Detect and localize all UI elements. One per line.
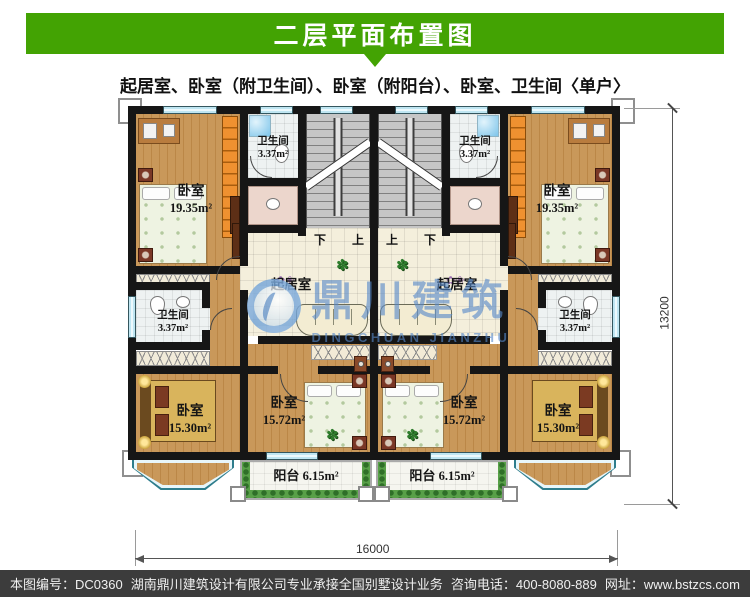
dimension-width: 16000	[356, 542, 389, 556]
room-area: 3.37m²	[538, 323, 612, 336]
room-area: 19.35m²	[522, 200, 592, 216]
lamp-icon	[597, 436, 610, 449]
nightstand	[138, 248, 153, 262]
window	[163, 106, 217, 114]
room-label-bedroom-bcr: 卧室 15.72m²	[424, 394, 504, 428]
room-name: 卧室	[424, 394, 504, 412]
room-label-bath-ml: 卫生间 3.37m²	[136, 310, 210, 335]
company-slogan: 湖南鼎川建筑设计有限公司专业承接全国别墅设计业务	[131, 574, 443, 593]
lamp-icon	[597, 375, 610, 388]
room-name: 卧室	[156, 182, 226, 200]
wall	[538, 290, 546, 308]
dimension-arrow	[135, 555, 144, 563]
shower-icon	[249, 115, 271, 137]
nightstand	[352, 436, 367, 450]
room-area: 15.72m²	[424, 412, 504, 428]
wall	[450, 178, 500, 186]
room-name: 卫生间	[136, 310, 210, 323]
wall	[136, 342, 210, 350]
room-label-bedroom-tl: 卧室 19.35m²	[156, 182, 226, 216]
nightstand	[138, 168, 153, 182]
room-label-balcony-r: 阳台 6.15m²	[382, 468, 502, 485]
room-label-bedroom-br: 卧室 15.30m²	[518, 402, 598, 436]
wall	[500, 290, 508, 374]
room-area: 6.15m²	[303, 469, 339, 483]
room-label-bath-tl: 卫生间 3.37m²	[246, 136, 300, 161]
basin-icon	[558, 296, 572, 308]
wall	[258, 336, 370, 344]
banner-pointer	[364, 54, 386, 67]
window	[612, 296, 620, 338]
tv-cabinet	[232, 223, 240, 259]
sofa	[296, 304, 368, 336]
window	[531, 106, 585, 114]
wall	[248, 366, 278, 374]
wall	[248, 225, 298, 233]
dimension-arrow	[609, 555, 618, 563]
room-area: 15.72m²	[244, 412, 324, 428]
desk	[138, 118, 180, 144]
title-banner: 二层平面布置图	[26, 13, 724, 54]
room-name: 卧室	[244, 394, 324, 412]
room-area: 3.37m²	[246, 149, 300, 162]
room-name: 卧室	[522, 182, 592, 200]
wall	[378, 336, 490, 344]
room-name: 卫生间	[538, 310, 612, 323]
room-name: 阳台	[409, 468, 435, 483]
lamp-icon	[138, 436, 151, 449]
stair-label-up: 上	[350, 231, 366, 248]
stair-label-down: 下	[312, 231, 328, 248]
room-name: 卫生间	[246, 136, 300, 149]
wall	[612, 106, 620, 460]
bay-window-right	[514, 458, 616, 490]
dimension-line-bottom	[135, 558, 618, 559]
room-name: 阳台	[273, 468, 299, 483]
room-label-bedroom-tr: 卧室 19.35m²	[522, 182, 592, 216]
nightstand	[595, 248, 610, 262]
plant-icon: ✽	[396, 258, 409, 273]
room-area: 3.37m²	[136, 323, 210, 336]
sofa	[380, 304, 452, 336]
window	[128, 296, 136, 338]
desk	[568, 118, 610, 144]
wall	[248, 178, 298, 186]
room-area: 15.30m²	[150, 420, 230, 436]
drawing-number: 本图编号：DC0360	[10, 574, 123, 593]
wall	[202, 290, 210, 308]
room-area: 15.30m²	[518, 420, 598, 436]
wall	[128, 106, 136, 460]
entry-door	[381, 356, 394, 372]
dimension-line-right	[672, 108, 673, 505]
wall	[538, 342, 612, 350]
shower-icon	[477, 115, 499, 137]
room-label-living-l: 起居室	[251, 276, 331, 294]
pillar	[374, 486, 390, 502]
plant-icon: ✽	[336, 258, 349, 273]
wall	[470, 366, 500, 374]
plant-icon: ✽	[406, 428, 419, 443]
stair-label-down: 下	[422, 231, 438, 248]
window	[260, 106, 293, 114]
closet	[136, 351, 210, 366]
website: 网址：www.bstzcs.com	[605, 574, 740, 593]
subtitle: 起居室、卧室（附卫生间）、卧室（附阳台）、卧室、卫生间〈单户〉	[0, 72, 750, 97]
pillar	[230, 486, 246, 502]
nightstand	[381, 374, 396, 388]
phone: 咨询电话：400-8080-889	[451, 574, 597, 593]
window	[320, 106, 353, 114]
room-name: 卧室	[518, 402, 598, 420]
lamp-icon	[138, 375, 151, 388]
wall	[442, 114, 450, 236]
staircase-right	[378, 114, 442, 228]
wall	[136, 366, 240, 374]
room-name: 卫生间	[448, 136, 502, 149]
basin-icon	[468, 198, 482, 210]
entry-door	[354, 356, 367, 372]
nightstand	[595, 168, 610, 182]
window	[455, 106, 488, 114]
wall	[128, 452, 620, 460]
room-label-bedroom-bl: 卧室 15.30m²	[150, 402, 230, 436]
room-label-bath-mr: 卫生间 3.37m²	[538, 310, 612, 335]
wall	[298, 114, 306, 236]
plant-icon: ✽	[326, 428, 339, 443]
stair-label-up: 上	[384, 231, 400, 248]
room-label-living-r: 起居室	[417, 276, 497, 294]
plant-strip	[242, 490, 370, 498]
floor-plan: ✽ ✽ ✽ ✽ ✿❀ ✿❀ 下 上 上 下 卧室 19.3	[128, 106, 620, 506]
wall	[240, 290, 248, 374]
nightstand	[381, 436, 396, 450]
pillar	[502, 486, 518, 502]
staircase-left	[306, 114, 370, 228]
dimension-height: 13200	[658, 296, 672, 329]
window	[395, 106, 428, 114]
balcony-door	[266, 452, 318, 460]
room-label-bedroom-bcl: 卧室 15.72m²	[244, 394, 324, 428]
wall	[370, 114, 378, 452]
wall	[538, 282, 612, 290]
wall	[450, 225, 500, 233]
nightstand	[352, 374, 367, 388]
room-name: 起居室	[251, 276, 331, 294]
tv-cabinet	[508, 223, 516, 259]
pillar	[358, 486, 374, 502]
room-name: 卧室	[150, 402, 230, 420]
basin-icon	[176, 296, 190, 308]
wall	[508, 366, 612, 374]
room-label-bath-tr: 卫生间 3.37m²	[448, 136, 502, 161]
room-area: 19.35m²	[156, 200, 226, 216]
page: 二层平面布置图 起居室、卧室（附卫生间）、卧室（附阳台）、卧室、卫生间〈单户〉	[0, 0, 750, 597]
page-title: 二层平面布置图	[273, 16, 476, 52]
room-label-balcony-l: 阳台 6.15m²	[246, 468, 366, 485]
closet	[538, 351, 612, 366]
bay-window-left	[132, 458, 234, 490]
headboard	[597, 380, 608, 442]
basin-icon	[266, 198, 280, 210]
wall	[136, 282, 210, 290]
footer-bar: 本图编号：DC0360 湖南鼎川建筑设计有限公司专业承接全国别墅设计业务 咨询电…	[0, 570, 750, 597]
room-name: 起居室	[417, 276, 497, 294]
room-area: 3.37m²	[448, 149, 502, 162]
balcony-door	[430, 452, 482, 460]
plant-strip	[378, 490, 506, 498]
room-area: 6.15m²	[439, 469, 475, 483]
